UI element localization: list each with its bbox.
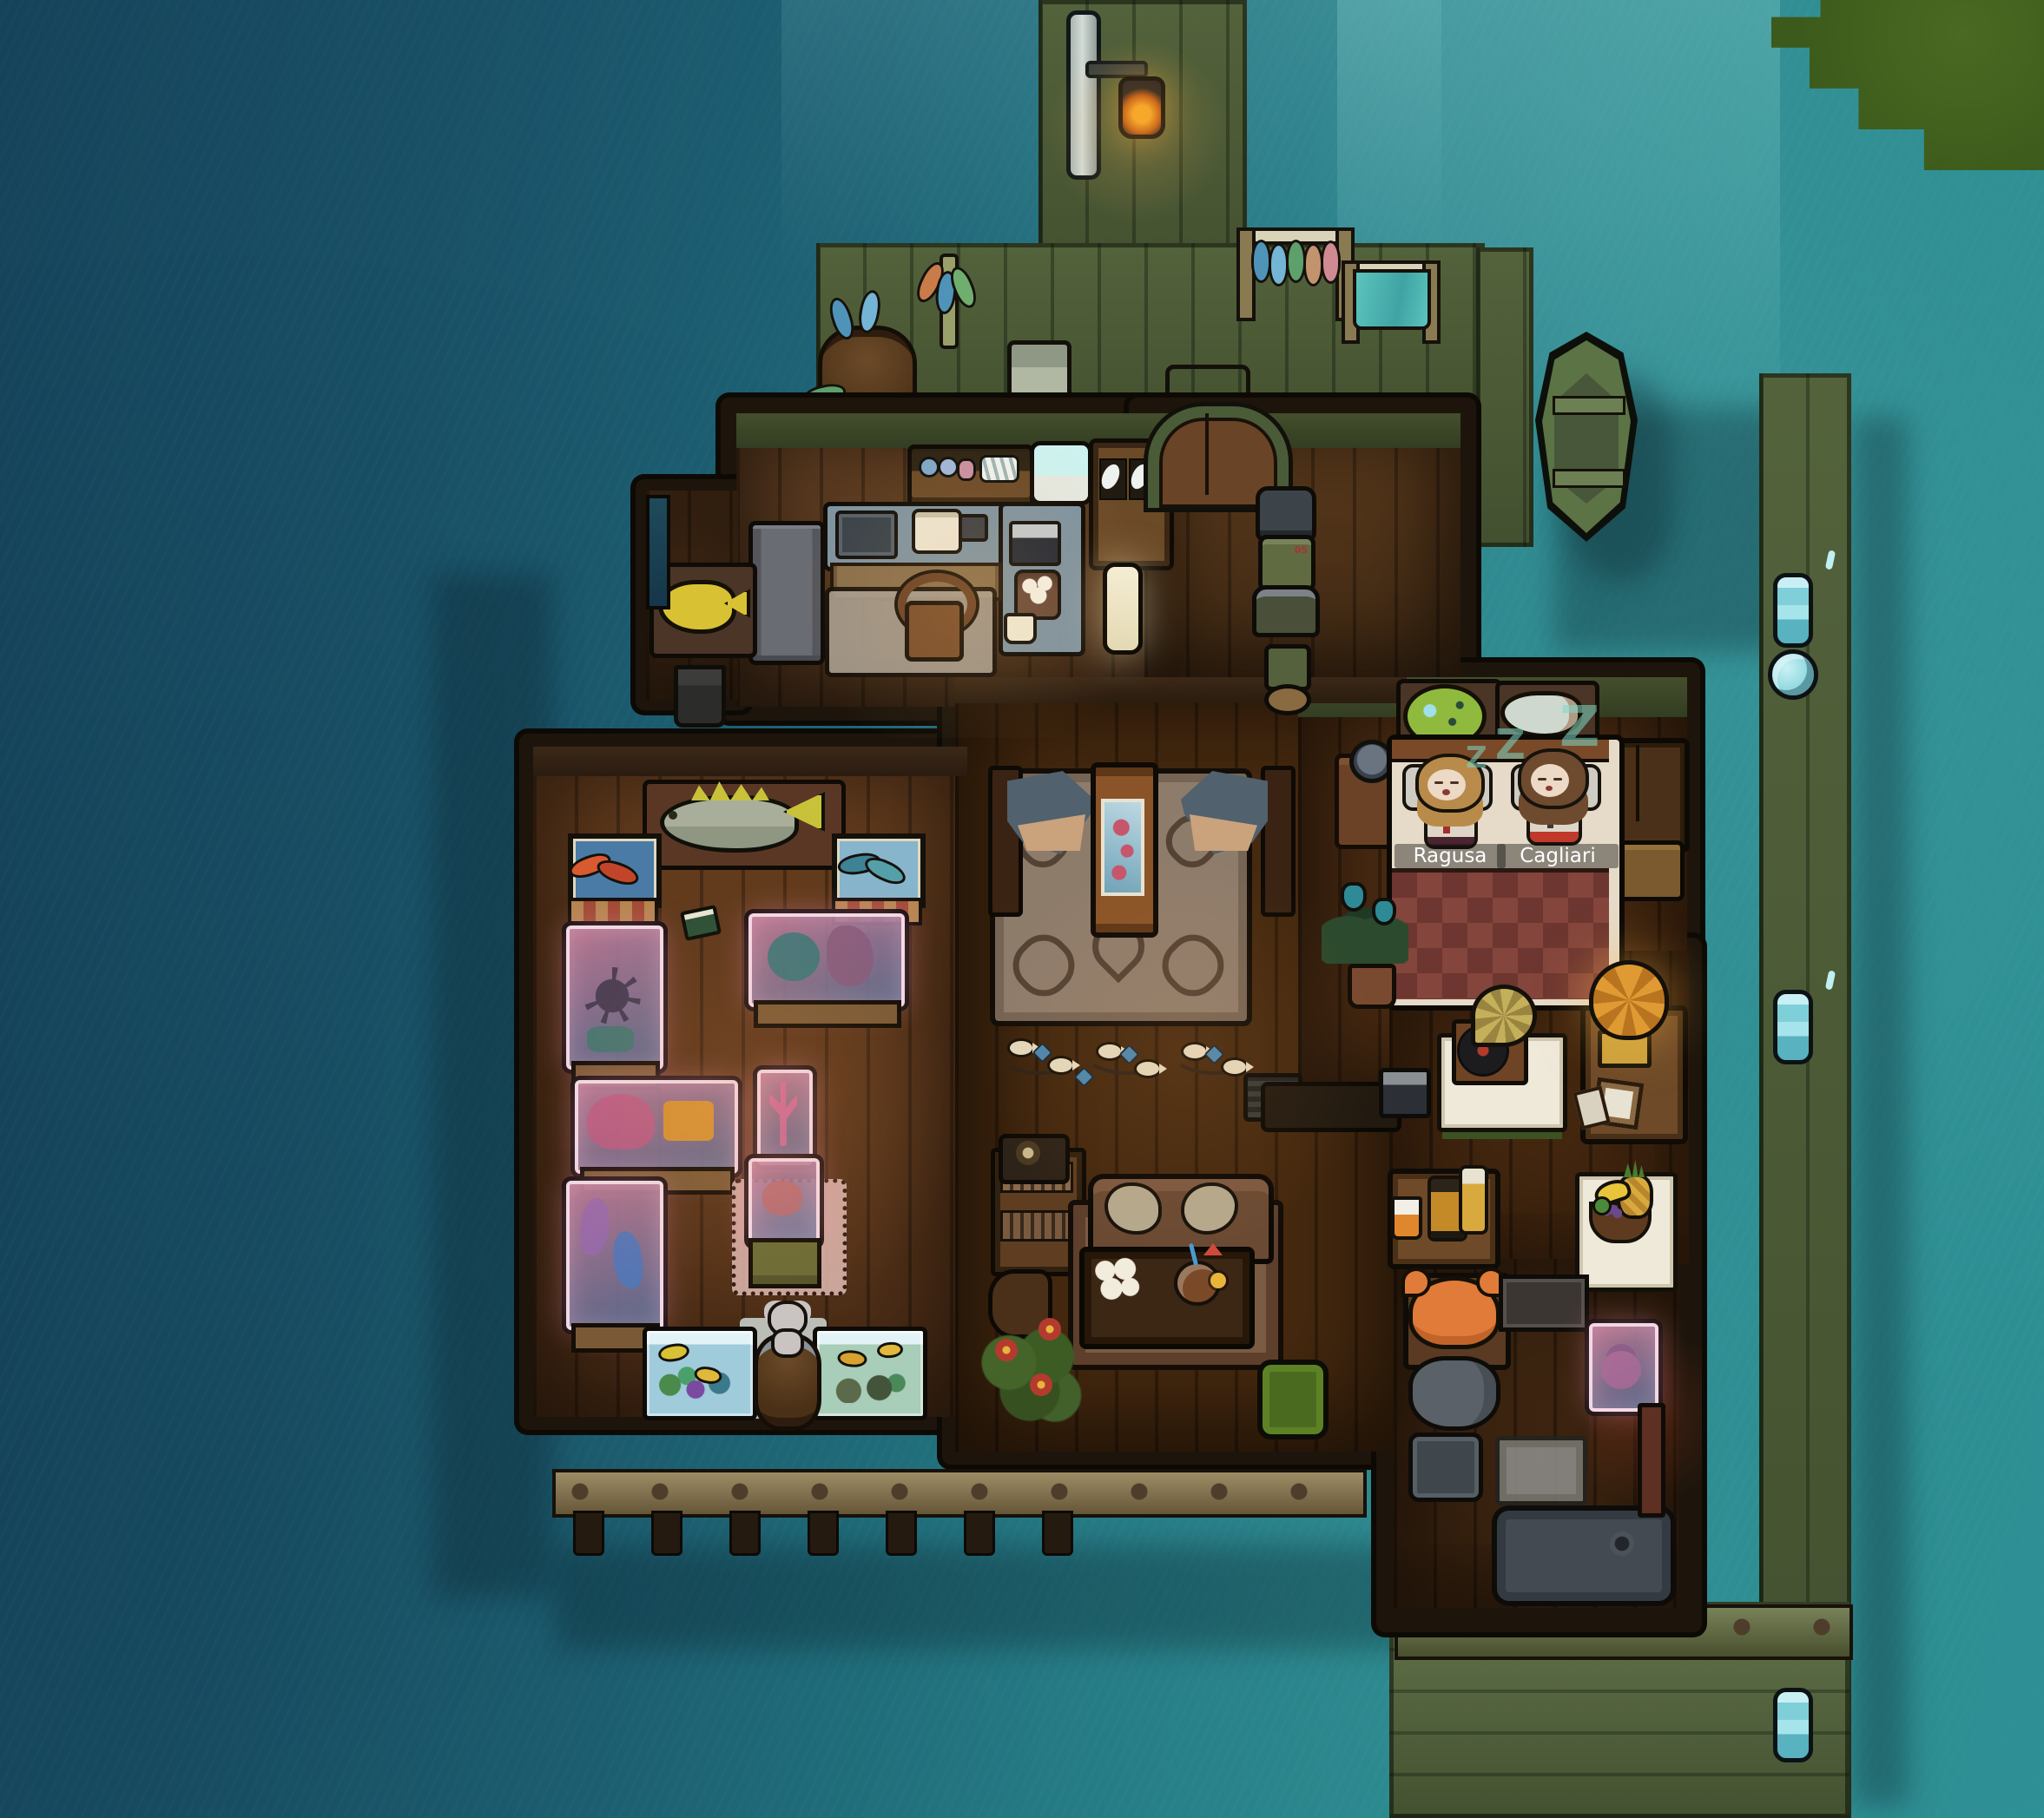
satchel[interactable] [912, 509, 962, 554]
dock-piling [808, 1511, 839, 1556]
red-flower-icon [1038, 1318, 1061, 1340]
jar-icon [938, 457, 959, 478]
octopus-treasure-tank[interactable] [575, 1080, 738, 1174]
closed-eye-icon [1450, 781, 1459, 784]
aquarium-plants-icon [653, 1358, 738, 1403]
crab-claw-icon [1401, 1268, 1431, 1297]
trash-bin[interactable] [674, 665, 726, 728]
armor-helmet-icon[interactable] [1256, 486, 1316, 542]
fish-eye-icon [669, 811, 677, 820]
open-mouth-icon [1442, 789, 1450, 795]
floral-scroll-icon [1101, 799, 1144, 896]
tank-base [754, 1000, 901, 1028]
gramophone-horn-icon[interactable] [1471, 985, 1537, 1047]
dock-piling [729, 1511, 761, 1556]
rowboat-bench [1553, 396, 1625, 415]
plant-pot[interactable] [1348, 964, 1396, 1009]
teddy-bear-body-icon [771, 1328, 804, 1358]
ragusa-face [1428, 769, 1466, 800]
garland-fish-icon [1047, 1056, 1075, 1075]
paper-lantern[interactable] [1103, 563, 1143, 655]
garland-fish-icon [1181, 1042, 1209, 1061]
red-flower-icon [995, 1339, 1018, 1361]
seahorse-display-tank[interactable] [566, 1181, 663, 1330]
gallery-north-wall [533, 747, 967, 776]
crab-tank-base [748, 1238, 821, 1288]
red-flower-icon [1030, 1373, 1052, 1396]
coral-column-tank[interactable] [757, 1070, 813, 1165]
dock-piling [1042, 1511, 1073, 1556]
drink-flower-icon [1210, 1273, 1226, 1288]
bathroom-door[interactable] [1638, 1403, 1665, 1518]
garland-fish-icon [1134, 1059, 1162, 1078]
mug-icon[interactable] [959, 514, 988, 542]
anemone-tank[interactable] [1589, 1323, 1658, 1412]
shipwheel-display-tank[interactable] [566, 925, 663, 1070]
bathroom-sink[interactable] [1408, 1433, 1483, 1502]
wardrobe-split [1636, 745, 1639, 821]
jar-icon [919, 457, 940, 478]
lime-icon [1592, 1196, 1612, 1215]
sleep-z-icon: Z [1559, 700, 1599, 755]
toilet[interactable] [1408, 1356, 1500, 1431]
books-row-icon [1000, 1210, 1073, 1242]
kitchen-chair[interactable] [905, 601, 964, 662]
white-basin[interactable] [1030, 441, 1092, 505]
green-pouf[interactable] [1257, 1360, 1329, 1439]
walkway-shadow [1853, 417, 1909, 1806]
door-split [1205, 413, 1209, 495]
soccer-ball[interactable] [1768, 649, 1818, 700]
tea-set-icon[interactable] [1091, 1257, 1143, 1302]
boat-dock-finger [1476, 247, 1533, 547]
table-lamp-icon[interactable] [1589, 960, 1669, 1040]
armor-stand-base [1264, 684, 1311, 715]
bathtub[interactable] [1492, 1505, 1676, 1606]
west-window [646, 495, 670, 609]
hanging-lantern[interactable] [1118, 76, 1165, 139]
jar-icon [957, 458, 976, 481]
dock-piling [573, 1511, 604, 1556]
mooring-bollard[interactable] [1773, 990, 1813, 1064]
dock-piling [886, 1511, 917, 1556]
juice-glass-icon[interactable] [1391, 1196, 1422, 1240]
teal-tulip-icon [1341, 882, 1367, 912]
cagliari-face [1531, 764, 1569, 797]
garland-fish-icon [1096, 1042, 1124, 1061]
lamp-post[interactable] [1066, 10, 1101, 180]
fridge[interactable] [748, 521, 825, 665]
lamp-arm [1085, 61, 1148, 78]
smile-icon [1546, 786, 1553, 791]
dock-piling [651, 1511, 682, 1556]
towel [1353, 269, 1431, 330]
mooring-bollard[interactable] [1773, 1688, 1813, 1762]
bathtub-drain-icon [1610, 1531, 1634, 1556]
rowboat-bench [1553, 469, 1625, 488]
phone-dial-icon [1016, 1141, 1040, 1165]
plates-icon [979, 455, 1019, 483]
picture-stand-awning [568, 898, 658, 925]
teal-tulip-icon [1372, 898, 1396, 925]
dock-piling [964, 1511, 995, 1556]
character-label-cagliari: Cagliari [1497, 844, 1619, 868]
wall-cabinets[interactable] [1499, 1275, 1589, 1332]
armor-chest-mark: 05 [1295, 544, 1308, 556]
counter-sink[interactable] [835, 510, 898, 559]
armor-chest[interactable]: 05 [1258, 535, 1315, 592]
radio[interactable] [1009, 521, 1061, 566]
closed-eye-icon [1434, 781, 1443, 784]
garland-fish-icon [1007, 1038, 1035, 1057]
armor-helmet-goggles-icon[interactable] [1252, 585, 1320, 637]
sleep-z-icon: Z [1495, 724, 1526, 766]
flower-bush[interactable] [978, 1323, 1082, 1433]
living-north-wall [955, 677, 1407, 703]
drying-fish-icon [1321, 240, 1341, 284]
crab-display-tank[interactable] [748, 1158, 820, 1245]
small-radio[interactable] [1379, 1068, 1431, 1118]
coffee-cup-icon[interactable] [1004, 613, 1037, 644]
sleep-z-icon: Z [1466, 743, 1487, 773]
mooring-bollard[interactable] [1773, 573, 1813, 648]
whiskey-bottle-icon[interactable] [1459, 1165, 1488, 1235]
driftwood-icon [823, 1363, 908, 1403]
closed-eye-icon [1553, 778, 1562, 781]
game-viewport: 05 Z Z Z Ragusa Cagliari [0, 0, 2044, 1818]
squid-display-tank[interactable] [748, 913, 905, 1007]
closed-eye-icon [1538, 778, 1546, 781]
house-shadow-south [556, 1545, 1415, 1650]
bath-mat [1495, 1436, 1587, 1505]
character-label-ragusa: Ragusa [1395, 844, 1506, 868]
bed-blanket [1392, 868, 1609, 999]
